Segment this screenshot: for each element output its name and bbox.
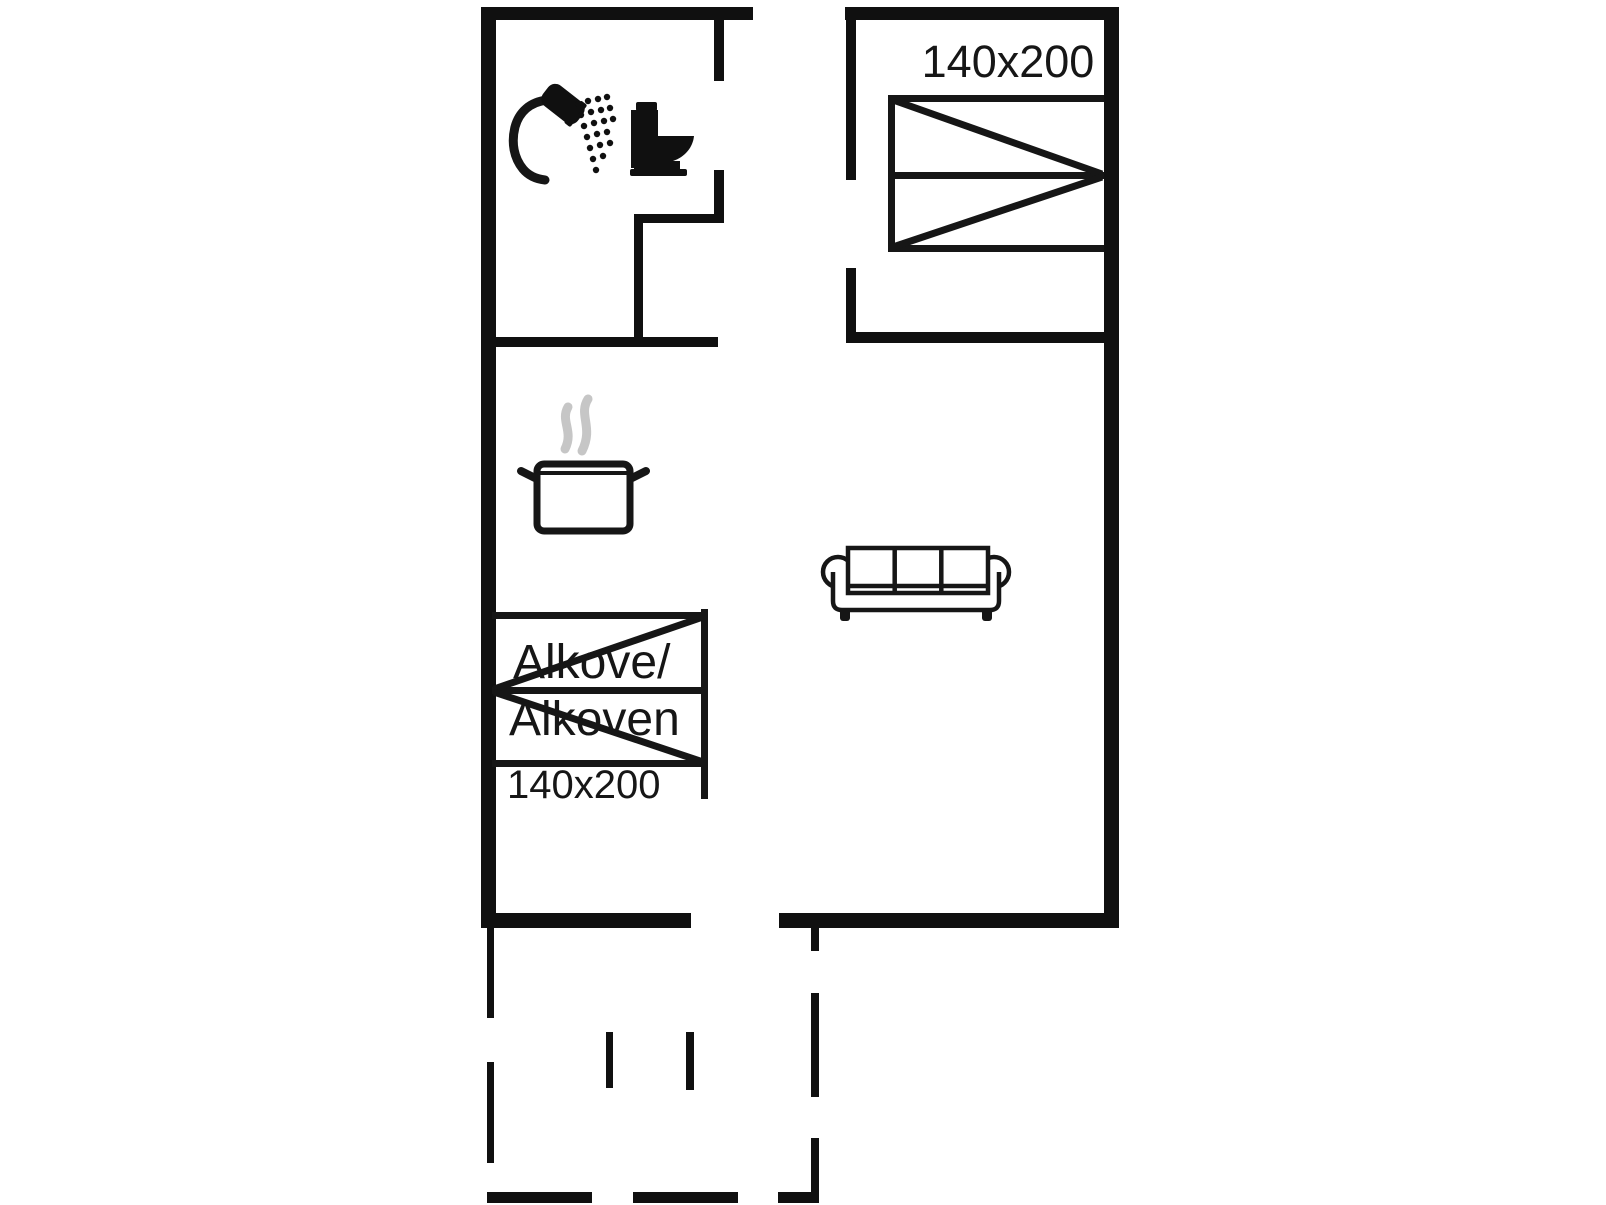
terrace-step-dash [606, 1032, 613, 1088]
shower-icon [513, 79, 616, 180]
floor-plan-drawing [0, 0, 1606, 1205]
steam-icon [565, 399, 588, 451]
double-bed-icon [888, 95, 1104, 252]
terrace-left-dash [487, 928, 494, 1018]
bedroom-wall-lower [846, 268, 856, 343]
bottom-wall-left [481, 913, 691, 928]
terrace-bottom-dash [487, 1192, 592, 1203]
bedroom-bottom-wall [846, 332, 1104, 343]
sofa-body [823, 548, 1009, 610]
terrace-right-dash [811, 928, 819, 951]
toilet-icon [630, 102, 694, 176]
bathroom-niche-left-wall [634, 214, 643, 343]
top-wall-right [845, 7, 1118, 20]
bottom-wall-right [779, 913, 1119, 928]
terrace-step-dash [686, 1032, 694, 1090]
bathroom-wall-upper [714, 7, 724, 81]
terrace-right-dash [811, 1138, 819, 1198]
bedroom-wall-upper [846, 7, 856, 180]
bathroom-niche-top-wall [634, 214, 724, 223]
alcove-label-line2: Alkoven [509, 696, 680, 744]
left-wall [481, 7, 496, 928]
terrace-right-dash [811, 993, 819, 1097]
bedroom-bed-size-label: 140x200 [920, 39, 1096, 84]
terrace-bottom-dash [778, 1192, 819, 1203]
cooking-pot-icon [521, 399, 646, 531]
terrace-left-dash [487, 1062, 494, 1163]
right-wall [1104, 7, 1119, 928]
floor-plan-canvas: 140x200 Alkove/ Alkoven 140x200 [0, 0, 1606, 1205]
shower-hose [513, 100, 547, 180]
alcove-label-line1: Alkove/ [513, 639, 670, 687]
terrace-dashed-outline [487, 928, 819, 1203]
bathroom-bottom-wall [481, 337, 718, 347]
sofa-icon [823, 548, 1009, 621]
alcove-bed-size-label: 140x200 [507, 765, 660, 805]
pot-body [521, 464, 646, 531]
terrace-bottom-dash [633, 1192, 738, 1203]
top-wall-left [481, 7, 753, 20]
